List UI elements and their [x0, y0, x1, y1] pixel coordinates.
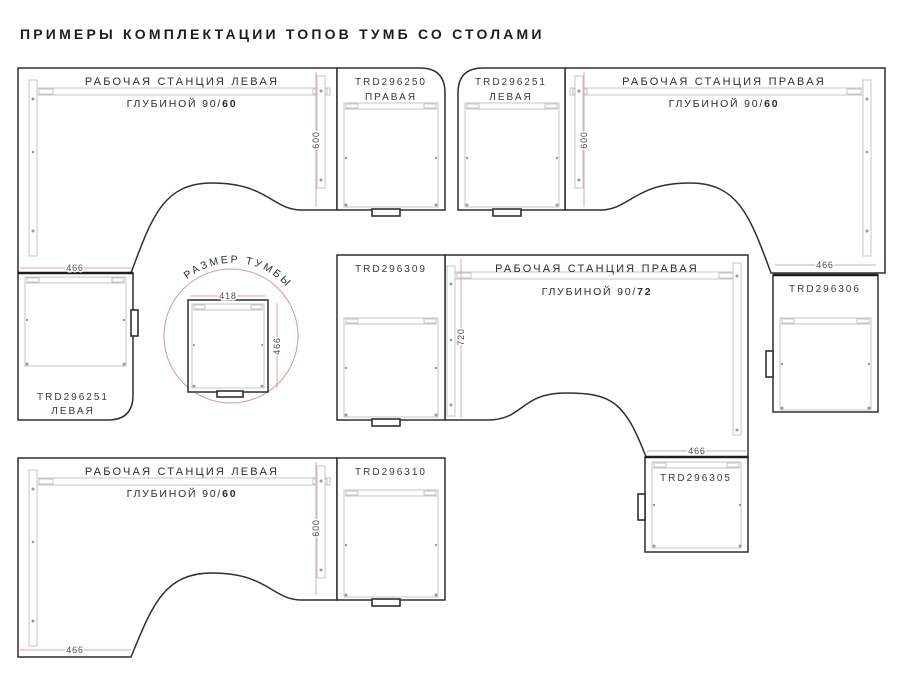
cabinet-side: ЛЕВАЯ — [51, 406, 94, 417]
dim-600: 600 — [311, 131, 321, 148]
cabinet-code: TRD296250 — [355, 77, 427, 88]
dim-600: 600 — [579, 131, 589, 148]
cabinet-side: ЛЕВАЯ — [489, 92, 532, 103]
cabinet-trd296306-outline — [773, 275, 878, 412]
dim-600: 600 — [311, 519, 321, 536]
cabinet-trd296310-outline — [337, 458, 445, 600]
cabinet-code: TRD296306 — [789, 284, 861, 295]
dim-466: 466 — [816, 260, 833, 270]
cabinet-trd296309-handle — [372, 419, 400, 426]
page: ПРИМЕРЫ КОМПЛЕКТАЦИИ ТОПОВ ТУМБ СО СТОЛА… — [0, 0, 900, 675]
station-depth: ГЛУБИНОЙ 90/72 — [542, 285, 653, 298]
cabinet-code: TRD296309 — [355, 264, 427, 275]
dim-466: 466 — [272, 337, 282, 354]
cabinet-trd296251-left-handle — [131, 310, 138, 336]
cabinet-trd296309-outline — [337, 255, 445, 420]
station-depth: ГЛУБИНОЙ 90/60 — [127, 487, 238, 500]
cabinet-trd296250-handle — [372, 209, 400, 216]
cabinet-code: TRD296251 — [37, 392, 109, 403]
dim-466: 466 — [66, 645, 83, 655]
station-depth: ГЛУБИНОЙ 90/60 — [669, 97, 780, 110]
cabinet-trd296310-handle — [372, 599, 400, 606]
station-name: РАБОЧАЯ СТАНЦИЯ ПРАВАЯ — [622, 76, 826, 88]
cabinet-trd296305-handle — [638, 494, 645, 520]
cabinet-size-detail: 418 466 РАЗМЕР ТУМБЫ — [164, 254, 305, 403]
cabinet-side: ПРАВАЯ — [365, 92, 417, 103]
detail-cabinet-outline — [188, 300, 268, 392]
workstation-bottom-left: 600 466 РАБОЧАЯ СТАНЦИЯ ЛЕВАЯ ГЛУБИНОЙ 9… — [18, 458, 445, 657]
cabinet-trd296251-outline — [458, 68, 565, 210]
cabinet-trd296306-handle — [766, 351, 773, 377]
detail-circle-label: РАЗМЕР ТУМБЫ — [182, 254, 295, 290]
cabinet-trd296250-outline — [337, 68, 445, 210]
diagram-canvas: 600 466 РАБОЧАЯ СТАНЦИЯ ЛЕВАЯ ГЛУБИНОЙ 9… — [0, 0, 900, 675]
cabinet-trd296305-outline — [645, 457, 748, 552]
station-name: РАБОЧАЯ СТАНЦИЯ ЛЕВАЯ — [85, 76, 279, 88]
station-name: РАБОЧАЯ СТАНЦИЯ ЛЕВАЯ — [85, 466, 279, 478]
dim-418: 418 — [219, 291, 236, 301]
dim-720: 720 — [456, 328, 466, 345]
station-depth: ГЛУБИНОЙ 90/60 — [127, 97, 238, 110]
cabinet-code: TRD296305 — [660, 473, 732, 484]
dim-466: 466 — [66, 263, 83, 273]
detail-cabinet-handle — [217, 391, 243, 397]
cabinet-code: TRD296251 — [475, 77, 547, 88]
cabinet-trd296251-handle — [493, 209, 521, 216]
dim-466: 466 — [688, 446, 705, 456]
cabinet-code: TRD296310 — [355, 467, 427, 478]
station-name: РАБОЧАЯ СТАНЦИЯ ПРАВАЯ — [495, 263, 699, 275]
